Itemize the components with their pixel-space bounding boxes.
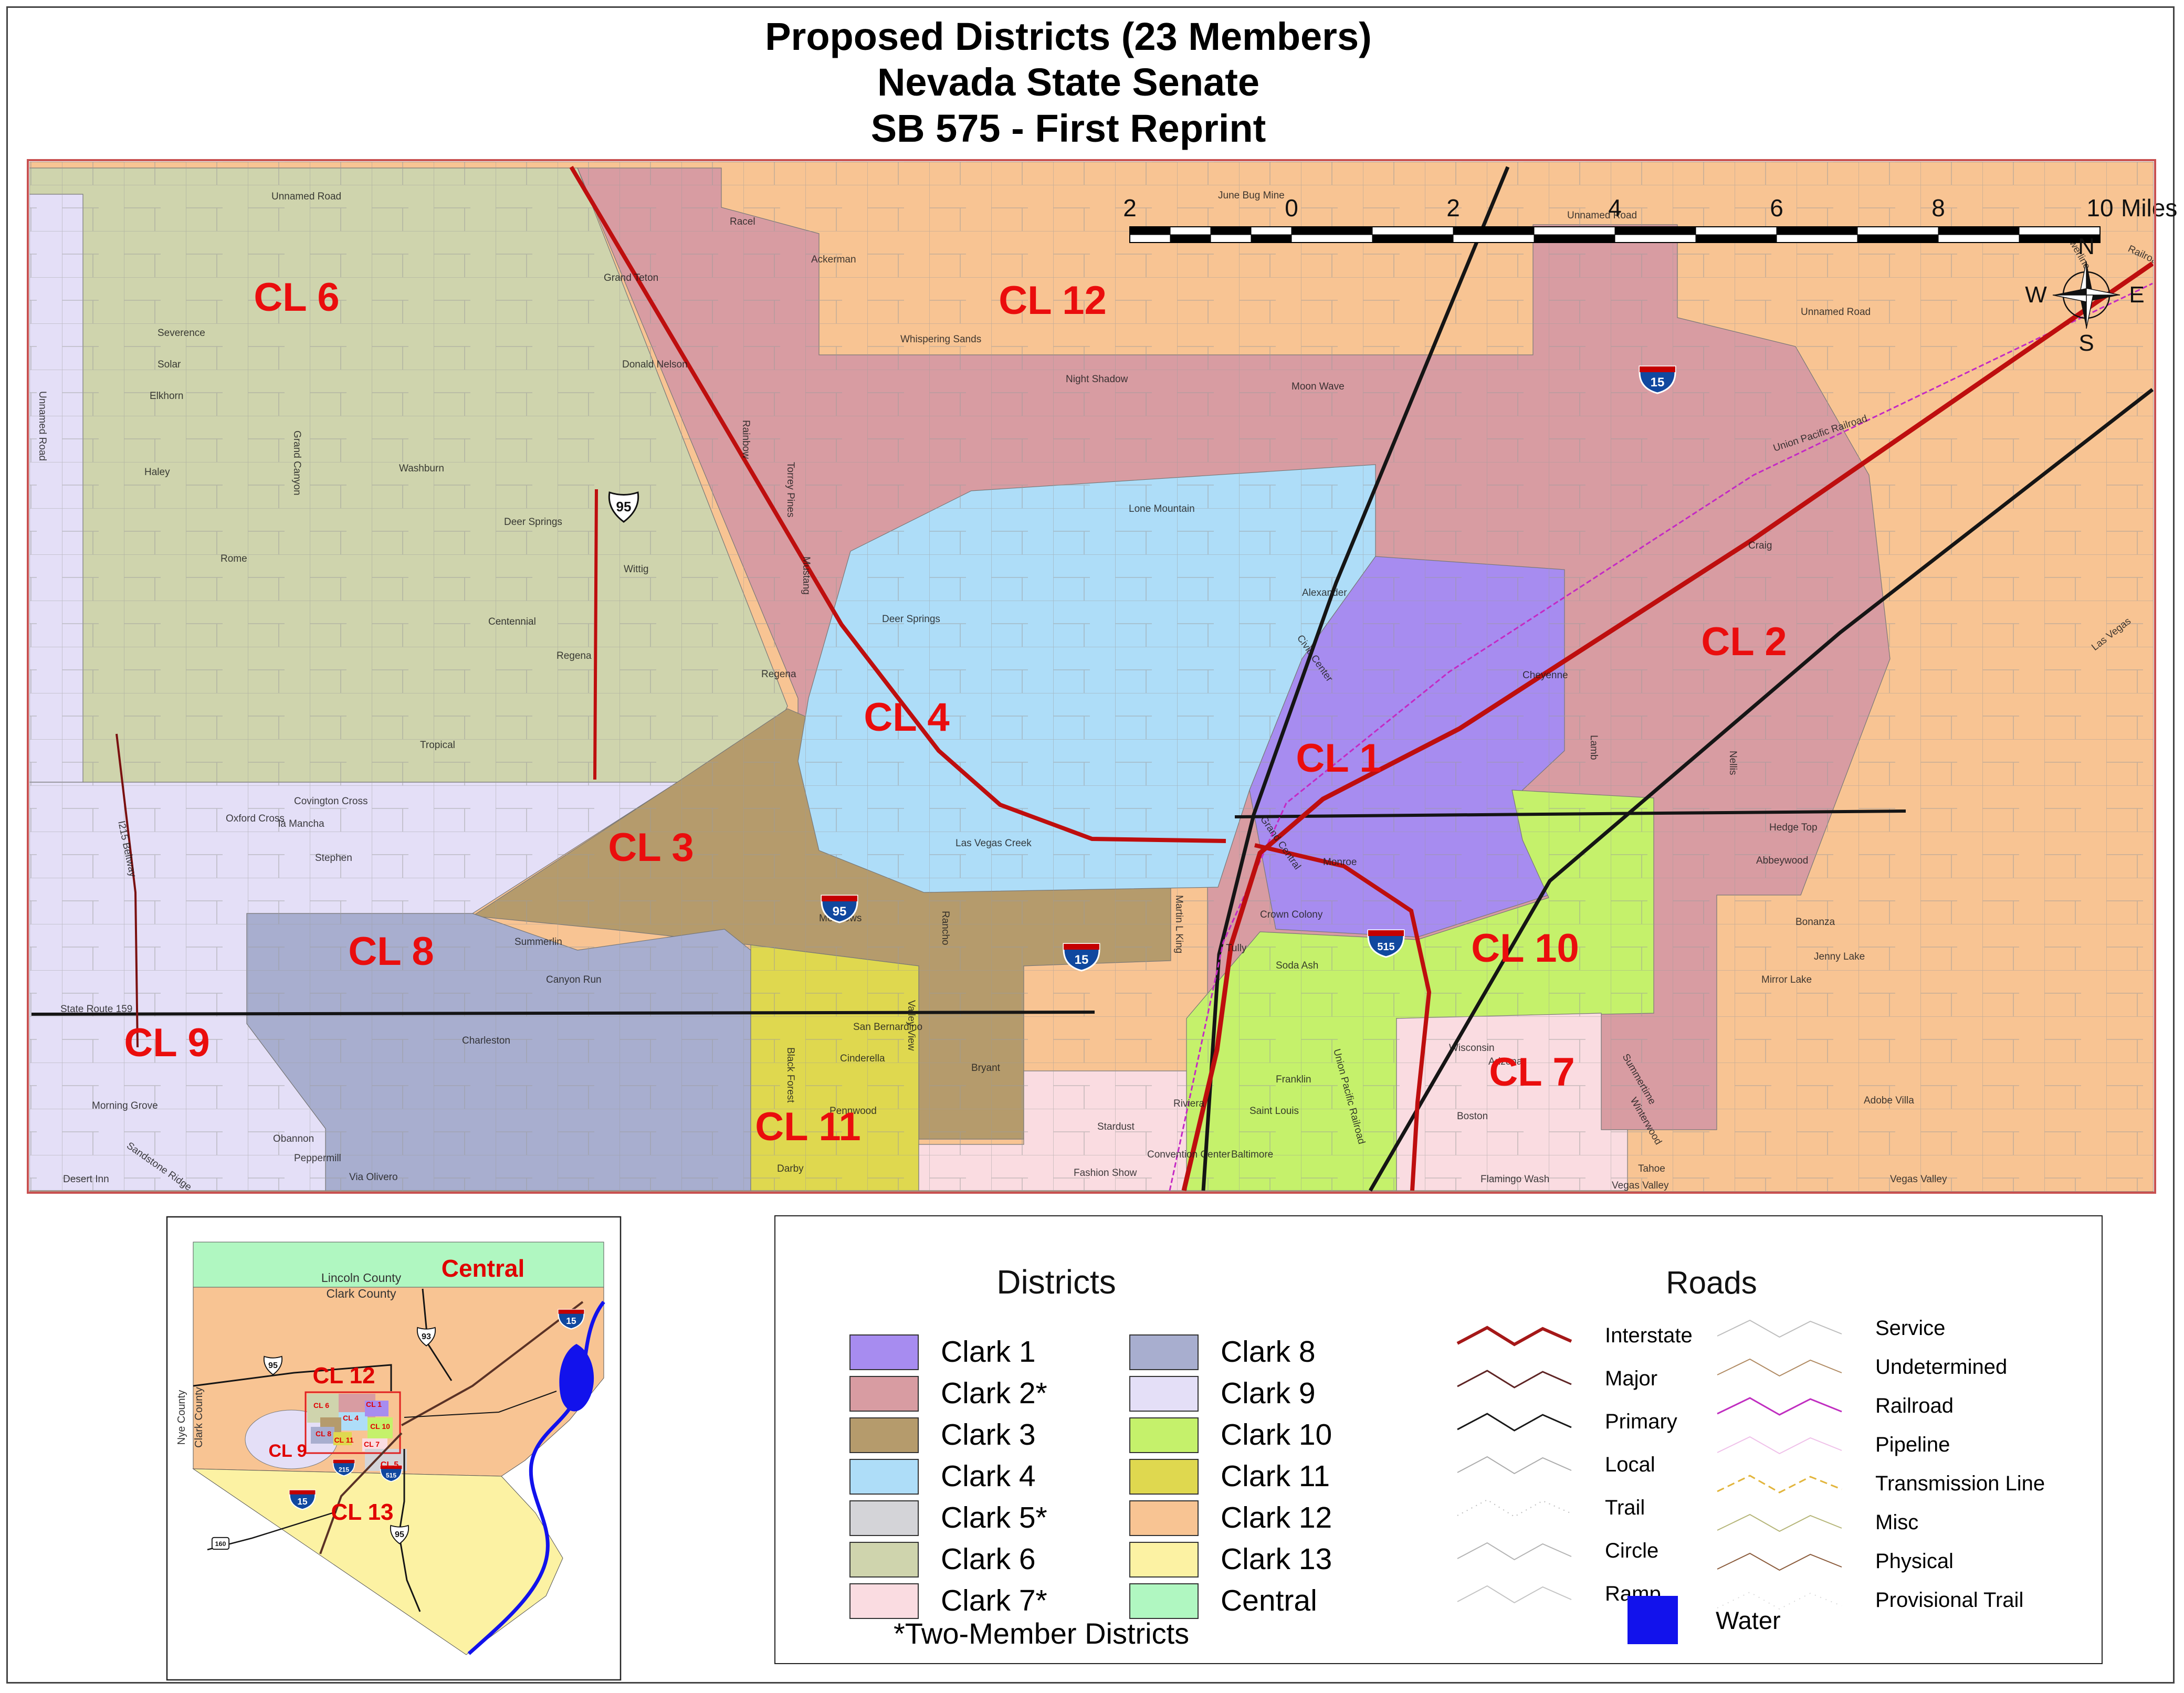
legend-roads-column-1: InterstateMajorPrimaryLocalTrailCircleRa… xyxy=(1455,1314,1693,1615)
street-label: Riviera xyxy=(1173,1098,1205,1109)
road-style-label: Trail xyxy=(1605,1496,1645,1520)
legend-district-row: Clark 1 xyxy=(849,1334,1047,1376)
street-label: Moon Wave xyxy=(1291,381,1345,392)
street-label: la Mancha xyxy=(278,818,324,829)
street-label: Via Olivero xyxy=(349,1172,398,1183)
street-label: Abbeywood xyxy=(1756,855,1808,866)
district-label-cl4: CL 4 xyxy=(864,695,949,740)
district-swatch-cl5 xyxy=(849,1500,919,1536)
inset-label: CL 6 xyxy=(313,1401,329,1410)
inset-label: Nye County xyxy=(176,1390,187,1445)
district-swatch-label: Clark 13 xyxy=(1221,1542,1332,1576)
street-label: Torrey Pines xyxy=(785,462,796,518)
district-swatch-label: Clark 9 xyxy=(1221,1376,1316,1411)
district-label-cl6: CL 6 xyxy=(254,275,339,320)
district-swatch-label: Clark 11 xyxy=(1221,1459,1330,1494)
road-style-label: Provisional Trail xyxy=(1875,1589,2023,1612)
street-label: Cheyenne xyxy=(1522,670,1568,681)
district-swatch-cl11 xyxy=(1129,1459,1199,1495)
street-label: Rainbow xyxy=(740,420,751,459)
street-label: Regena xyxy=(556,650,592,661)
scale-tick-label: 2 xyxy=(1446,194,1460,222)
street-label: Charleston xyxy=(462,1035,510,1046)
street-label: Black Forest xyxy=(785,1047,796,1103)
street-label: Ackerman xyxy=(811,254,856,265)
street-label: Lamb xyxy=(1588,735,1599,760)
road-style-label: Misc xyxy=(1875,1511,1918,1534)
road-style-label: Undetermined xyxy=(1875,1355,2007,1379)
scale-tick-label: 8 xyxy=(1931,194,1945,222)
street-label: Convention Center xyxy=(1147,1149,1231,1160)
district-label-cl3: CL 3 xyxy=(608,825,694,870)
map-road xyxy=(31,1012,1095,1014)
legend-district-row: Clark 5* xyxy=(849,1500,1047,1542)
district-swatch-cl13 xyxy=(1129,1542,1199,1578)
legend-roads-column-2: ServiceUndeterminedRailroadPipelineTrans… xyxy=(1715,1309,2045,1620)
street-label: Las Vegas Creek xyxy=(955,838,1032,849)
svg-text:15: 15 xyxy=(566,1316,576,1326)
legend-road-row: Undetermined xyxy=(1715,1348,2045,1386)
street-label: Crown Colony xyxy=(1260,909,1323,920)
water-swatch xyxy=(1627,1596,1678,1644)
street-label: Monroe xyxy=(1323,857,1357,868)
road-style-sample xyxy=(1715,1470,1844,1497)
scale-tick-label: 0 xyxy=(1285,194,1298,222)
scale-tick-label: 4 xyxy=(1608,194,1622,222)
inset-label: CL 11 xyxy=(334,1436,353,1444)
district-swatch-cl1 xyxy=(849,1334,919,1370)
street-label: Grand Teton xyxy=(604,272,658,283)
road-style-sample xyxy=(1715,1509,1844,1536)
legend-road-row: Service xyxy=(1715,1309,2045,1348)
svg-text:95: 95 xyxy=(395,1530,404,1539)
street-label: Tully xyxy=(1226,943,1247,954)
road-style-sample xyxy=(1455,1322,1573,1349)
scale-unit-label: Miles xyxy=(2121,194,2177,222)
legend-district-row: Clark 3 xyxy=(849,1417,1047,1459)
legend-two-member-note: *Two-Member Districts xyxy=(894,1616,1189,1650)
district-swatch-cl8 xyxy=(1129,1334,1199,1370)
district-swatch-label: Clark 3 xyxy=(941,1417,1036,1452)
road-style-label: Railroad xyxy=(1875,1394,1954,1418)
compass-letter: S xyxy=(2078,330,2094,356)
road-style-sample xyxy=(1715,1548,1844,1574)
road-style-sample xyxy=(1455,1365,1573,1392)
district-swatch-label: Clark 10 xyxy=(1221,1417,1332,1452)
legend-district-row: Clark 13 xyxy=(1129,1542,1332,1583)
scale-tick-label: 10 xyxy=(2086,194,2113,222)
street-label: Bryant xyxy=(971,1063,1001,1074)
road-style-label: Physical xyxy=(1875,1550,1954,1573)
road-style-label: Pipeline xyxy=(1875,1433,1950,1457)
district-swatch-label: Clark 4 xyxy=(941,1459,1036,1494)
legend-district-row: Clark 2* xyxy=(849,1376,1047,1417)
road-style-label: Service xyxy=(1875,1317,1945,1340)
inset-label: CL 4 xyxy=(343,1414,359,1422)
svg-text:515: 515 xyxy=(386,1471,396,1479)
district-swatch-label: Clark 1 xyxy=(941,1334,1036,1369)
svg-text:15: 15 xyxy=(1651,375,1665,390)
legend-water-row: Water xyxy=(1627,1596,1781,1644)
street-label: Nellis xyxy=(1727,751,1738,775)
road-style-label: Major xyxy=(1605,1367,1657,1391)
legend-district-row: Clark 11 xyxy=(1129,1459,1332,1500)
road-style-sample xyxy=(1455,1538,1573,1564)
svg-text:95: 95 xyxy=(616,499,632,514)
compass-letter: N xyxy=(2078,234,2095,259)
district-label-cl9: CL 9 xyxy=(124,1021,209,1065)
legend-road-row: Major xyxy=(1455,1357,1693,1400)
district-swatch-central xyxy=(1129,1583,1199,1619)
street-label: Tropical xyxy=(420,740,455,751)
street-label: Franklin xyxy=(1276,1074,1311,1085)
street-label: Bonanza xyxy=(1795,917,1835,928)
inset-label: CL 9 xyxy=(268,1441,307,1461)
compass-letter: E xyxy=(2129,282,2144,308)
street-label: Donald Nelson xyxy=(622,359,688,370)
legend-road-row: Circle xyxy=(1455,1529,1693,1572)
road-style-sample xyxy=(1715,1315,1844,1341)
legend-district-row: Clark 6 xyxy=(849,1542,1047,1583)
street-label: Wittig xyxy=(624,564,649,575)
street-label: Summerlin xyxy=(514,937,562,948)
street-label: Desert Inn xyxy=(63,1174,109,1185)
street-label: Lone Mountain xyxy=(1129,503,1195,514)
street-label: June Bug Mine xyxy=(1218,190,1285,201)
road-style-sample xyxy=(1715,1393,1844,1419)
inset-label: CL 12 xyxy=(312,1363,375,1389)
inset-label: CL 8 xyxy=(316,1429,331,1438)
district-swatch-cl7 xyxy=(849,1583,919,1619)
street-label: Canyon Run xyxy=(546,974,602,985)
street-label: Craig xyxy=(1748,540,1772,551)
district-swatch-label: Clark 8 xyxy=(1221,1334,1316,1369)
legend-road-row: Railroad xyxy=(1715,1386,2045,1425)
district-label-cl8: CL 8 xyxy=(348,929,434,974)
district-label-cl2: CL 2 xyxy=(1701,619,1787,664)
road-style-label: Transmission Line xyxy=(1875,1472,2045,1496)
district-swatch-cl6 xyxy=(849,1542,919,1578)
street-label: Deer Springs xyxy=(504,517,562,528)
street-label: Saint Louis xyxy=(1249,1106,1299,1117)
street-label: Alexander xyxy=(1302,587,1347,598)
district-swatch-label: Clark 12 xyxy=(1221,1500,1332,1535)
street-label: Fashion Show xyxy=(1074,1168,1137,1179)
svg-text:95: 95 xyxy=(268,1361,278,1370)
street-label: Unnamed Road xyxy=(37,391,48,461)
inset-label: CL 5 xyxy=(381,1460,398,1469)
legend: Districts Clark 1Clark 2*Clark 3Clark 4C… xyxy=(774,1215,2103,1664)
svg-text:215: 215 xyxy=(339,1466,349,1473)
legend-road-row: Physical xyxy=(1715,1542,2045,1581)
district-swatch-cl9 xyxy=(1129,1376,1199,1412)
road-style-sample xyxy=(1715,1354,1844,1380)
street-label: Elkhorn xyxy=(150,391,183,402)
legend-road-row: Local xyxy=(1455,1443,1693,1486)
district-swatch-label: Clark 6 xyxy=(941,1542,1036,1576)
road-style-sample xyxy=(1455,1495,1573,1521)
street-label: Regena xyxy=(761,669,796,680)
svg-text:515: 515 xyxy=(1377,941,1394,953)
svg-text:93: 93 xyxy=(422,1332,431,1341)
legend-districts-column-1: Clark 1Clark 2*Clark 3Clark 4Clark 5*Cla… xyxy=(849,1334,1047,1625)
scale-tick-label: 6 xyxy=(1770,194,1783,222)
inset-label: Lincoln County xyxy=(321,1271,402,1285)
legend-districts-column-2: Clark 8Clark 9Clark 10Clark 11Clark 12Cl… xyxy=(1129,1334,1332,1625)
street-label: Oxford Cross xyxy=(226,813,285,824)
district-label-cl11: CL 11 xyxy=(755,1105,860,1149)
district-swatch-cl2 xyxy=(849,1376,919,1412)
road-style-sample xyxy=(1455,1452,1573,1478)
water-label: Water xyxy=(1716,1606,1781,1635)
street-label: Racel xyxy=(730,216,755,227)
legend-district-row: Clark 8 xyxy=(1129,1334,1332,1376)
district-swatch-label: Clark 5* xyxy=(941,1500,1047,1535)
svg-text:95: 95 xyxy=(833,905,847,919)
street-label: Martin L King xyxy=(1173,895,1184,953)
road-style-sample xyxy=(1455,1408,1573,1435)
road-style-sample xyxy=(1455,1581,1573,1607)
street-label: San Bernardino xyxy=(853,1022,922,1033)
district-label-cl1: CL 1 xyxy=(1296,736,1381,781)
street-label: Haley xyxy=(144,467,170,478)
street-label: Solar xyxy=(157,359,181,370)
street-label: Rancho xyxy=(940,911,951,945)
inset-label: CL 1 xyxy=(366,1400,382,1408)
street-label: State Route 159 xyxy=(60,1004,132,1015)
inset-label: Clark County xyxy=(327,1287,396,1300)
legend-road-row: Transmission Line xyxy=(1715,1464,2045,1503)
street-label: Jenny Lake xyxy=(1814,951,1865,962)
legend-road-row: Interstate xyxy=(1455,1314,1693,1357)
inset-label: CL 7 xyxy=(364,1440,380,1448)
district-label-cl10: CL 10 xyxy=(1471,926,1579,971)
legend-districts-title: Districts xyxy=(996,1263,1116,1301)
legend-district-row: Clark 12 xyxy=(1129,1500,1332,1542)
street-label: Flamingo Wash xyxy=(1480,1174,1549,1185)
inset-overview-map: 1515215515959593160CentralLincoln County… xyxy=(167,1217,621,1680)
district-swatch-cl10 xyxy=(1129,1417,1199,1453)
street-label: Peppermill xyxy=(294,1153,341,1164)
street-label: Soda Ash xyxy=(1276,960,1318,971)
street-label: Vegas Valley xyxy=(1612,1180,1669,1191)
street-label: Tahoe xyxy=(1638,1163,1665,1174)
district-swatch-cl3 xyxy=(849,1417,919,1453)
legend-district-row: Clark 10 xyxy=(1129,1417,1332,1459)
inset-label: CL 10 xyxy=(370,1422,390,1431)
street-label: Mirror Lake xyxy=(1761,974,1812,985)
street-label: Boston xyxy=(1457,1111,1488,1122)
street-label: Adobe Villa xyxy=(1864,1095,1914,1106)
legend-district-row: Clark 9 xyxy=(1129,1376,1332,1417)
street-label: Mustang xyxy=(801,556,812,595)
inset-label: Central xyxy=(442,1255,524,1282)
compass-letter: W xyxy=(2025,282,2047,308)
district-swatch-label: Central xyxy=(1221,1583,1317,1618)
legend-road-row: Misc xyxy=(1715,1503,2045,1542)
street-label: Covington Cross xyxy=(294,796,367,807)
district-swatch-cl12 xyxy=(1129,1500,1199,1536)
street-label: Centennial xyxy=(488,616,536,627)
road-style-label: Local xyxy=(1605,1453,1655,1477)
street-label: Stephen xyxy=(315,853,352,864)
legend-road-row: Primary xyxy=(1455,1400,1693,1443)
street-label: Wisconsin xyxy=(1449,1043,1495,1054)
road-style-sample xyxy=(1715,1432,1844,1458)
legend-road-row: Pipeline xyxy=(1715,1425,2045,1464)
street-label: Darby xyxy=(777,1163,804,1174)
map-road xyxy=(595,489,596,780)
svg-text:15: 15 xyxy=(1075,953,1089,967)
svg-text:15: 15 xyxy=(297,1496,308,1507)
svg-text:160: 160 xyxy=(215,1540,226,1548)
district-swatch-label: Clark 7* xyxy=(941,1583,1047,1618)
street-label: Grand Canyon xyxy=(291,430,302,496)
district-swatch-label: Clark 2* xyxy=(941,1376,1047,1411)
street-label: Washburn xyxy=(399,463,444,474)
street-label: Baltimore xyxy=(1231,1149,1273,1160)
street-label: Morning Grove xyxy=(92,1100,158,1111)
street-label: Unnamed Road xyxy=(1801,307,1871,318)
street-label: Stardust xyxy=(1097,1121,1135,1132)
street-label: Obannon xyxy=(273,1133,314,1144)
district-label-cl12: CL 12 xyxy=(999,278,1107,323)
street-label: Cinderella xyxy=(840,1053,885,1064)
scale-tick-label: 2 xyxy=(1123,194,1137,222)
district-label-cl7: CL 7 xyxy=(1489,1050,1574,1095)
highway-shield-160: 160 xyxy=(212,1538,229,1549)
street-label: Night Shadow xyxy=(1066,374,1128,385)
legend-roads-title: Roads xyxy=(1666,1265,1757,1301)
street-label: Unnamed Road xyxy=(1567,210,1637,221)
street-label: Severence xyxy=(157,328,205,339)
inset-label: CL 13 xyxy=(331,1499,393,1525)
district-swatch-cl4 xyxy=(849,1459,919,1495)
legend-road-row: Trail xyxy=(1455,1486,1693,1529)
street-label: Rome xyxy=(220,553,247,564)
road-style-label: Circle xyxy=(1605,1539,1658,1563)
street-label: Unnamed Road xyxy=(271,191,341,202)
road-style-label: Primary xyxy=(1605,1410,1677,1434)
inset-label: Clark County xyxy=(193,1387,205,1448)
street-label: Vegas Valley xyxy=(1890,1174,1947,1185)
street-label: Whispering Sands xyxy=(900,334,981,345)
street-label: Hedge Top xyxy=(1769,822,1818,833)
legend-district-row: Clark 4 xyxy=(849,1459,1047,1500)
road-style-label: Interstate xyxy=(1605,1324,1693,1348)
street-label: Deer Springs xyxy=(882,614,940,625)
